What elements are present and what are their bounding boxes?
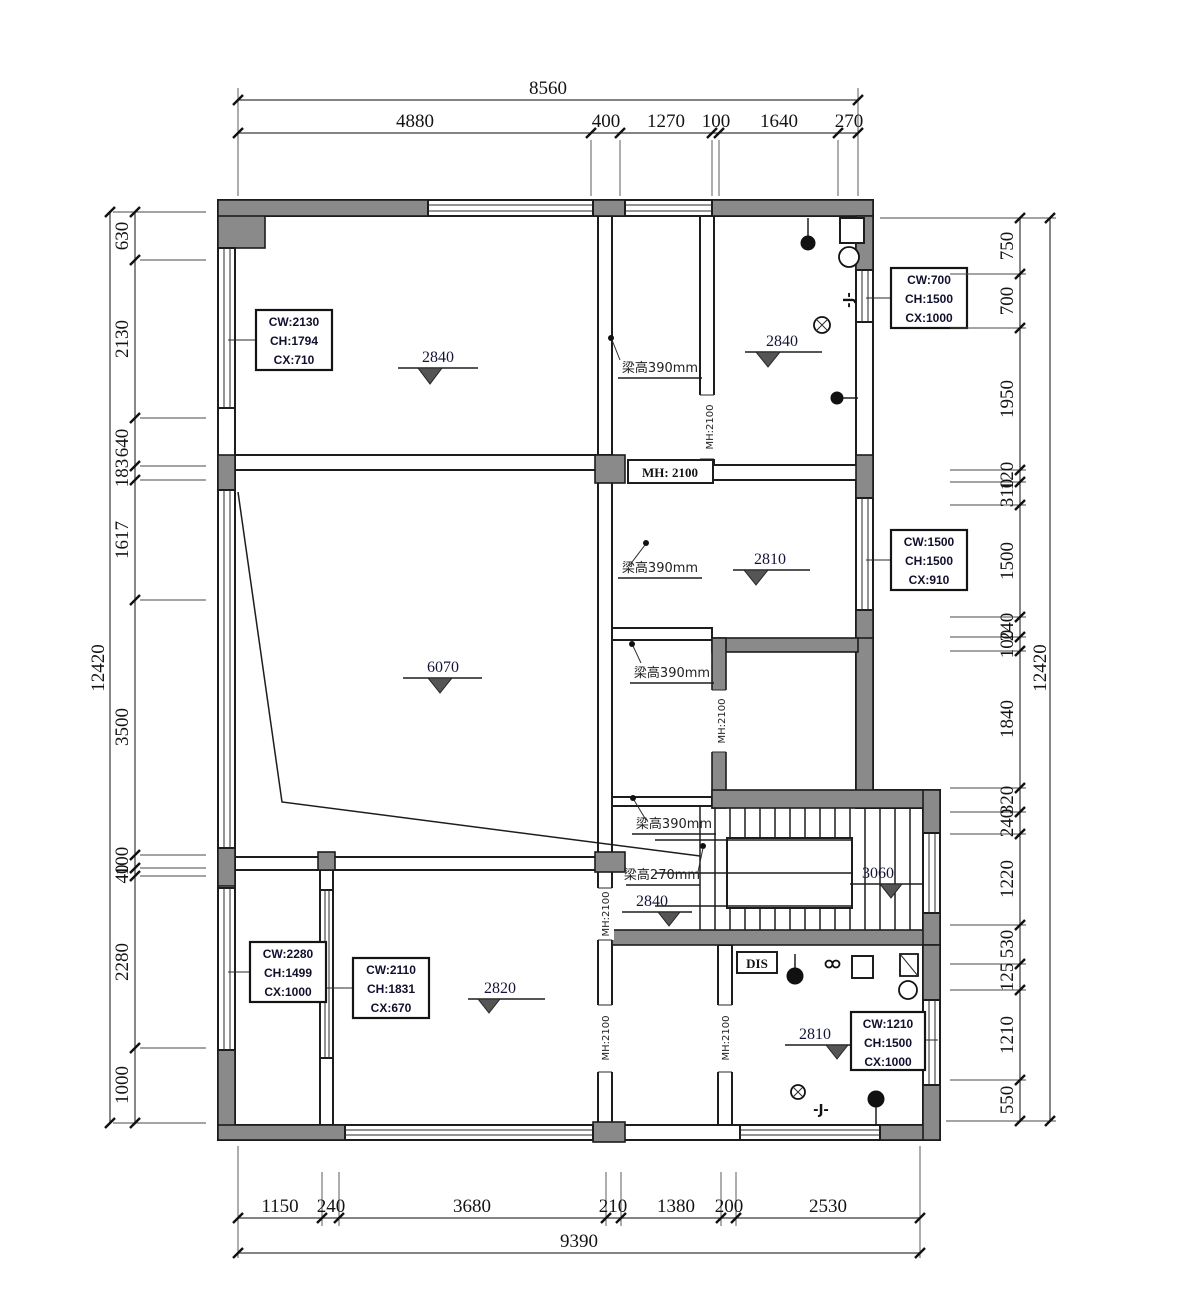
dim-label: 2530 [809,1196,847,1217]
light-fixture [868,1091,884,1107]
double-socket [833,961,840,968]
beam-label-2: 梁高390mm [618,540,702,578]
dim-label: 125 [997,963,1018,992]
light-fixture [787,968,803,984]
svg-text:2840: 2840 [636,893,668,910]
dim-label: 183 [112,459,133,488]
dim-label: 1210 [997,1016,1018,1054]
light-fixture [801,236,815,250]
dim-label: 1270 [647,111,685,132]
dim-label: 3680 [453,1196,491,1217]
dim-label: 1640 [760,111,798,132]
double-socket [826,961,833,968]
svg-text:CH:1794: CH:1794 [270,334,318,348]
svg-text:6070: 6070 [427,659,459,676]
dim-label: 1500 [997,542,1018,580]
svg-text:CX:1000: CX:1000 [264,985,312,999]
dim-label: 100 [997,630,1018,659]
dimension-top: 8560 4880 400 1270 100 1640 270 [233,78,863,196]
dim-label: 750 [997,232,1018,261]
dimension-bottom: 1150 240 3680 210 1380 200 2530 9390 [233,1146,925,1258]
window-spec-w5: CW:2110 CH:1831 CX:670 [327,958,429,1018]
elevation-bath-bottom: 2810 [785,1026,858,1059]
svg-text:2840: 2840 [766,333,798,350]
svg-text:梁高390mm: 梁高390mm [636,816,712,832]
bathroom-fixtures-top: -J- [801,218,864,404]
dim-label: 200 [715,1196,744,1217]
dimension-left: 630 2130 640 183 1617 3500 100 40 2280 1… [88,207,206,1128]
elevation-room-mid: 2810 [733,551,810,585]
dim-label: 210 [599,1196,628,1217]
beam-label-1: 梁高390mm [608,335,702,378]
window-spec-w4: CW:2280 CH:1499 CX:1000 [228,942,326,1002]
dim-label: 40 [112,865,133,884]
svg-text:梁高390mm: 梁高390mm [634,665,710,681]
fixture-box [852,956,873,978]
svg-text:CW:1210: CW:1210 [863,1017,914,1031]
door-height-label: MH:2100 [717,699,728,744]
window-spec-w3: CW:1500 CH:1500 CX:910 [866,530,967,590]
door-height-label: MH:2100 [601,1016,612,1061]
dim-label: 2130 [112,320,133,358]
dim-label: 1150 [261,1196,298,1217]
svg-text:CW:2110: CW:2110 [366,963,416,977]
dim-label: 400 [592,111,621,132]
svg-text:CW:1500: CW:1500 [904,535,955,549]
svg-text:CH:1831: CH:1831 [367,982,415,996]
dim-label: 1380 [657,1196,695,1217]
svg-text:2820: 2820 [484,980,516,997]
svg-text:梁高390mm: 梁高390mm [622,560,698,576]
svg-text:CW:700: CW:700 [907,273,951,287]
svg-text:CX:670: CX:670 [371,1001,412,1015]
elevation-lobby: 2840 [622,893,692,926]
beam-label-5: 梁高270mm [624,843,706,885]
elevation-bedroom-top: 2840 [398,349,478,384]
dim-label: 9390 [560,1231,598,1252]
svg-text:CX:710: CX:710 [274,353,315,367]
svg-text:CX:910: CX:910 [909,573,950,587]
dis-label: DIS [746,956,768,971]
elevation-stair: 3060 [850,865,922,898]
door-openings: MH:2100 MH:2100 MH:2100 MH:2100 MH:2100 … [596,395,734,1072]
dim-label: 700 [997,287,1018,316]
door-height-label: MH:2100 [721,1016,732,1061]
svg-text:2810: 2810 [754,551,786,568]
elevation-bedroom-bottom: 2820 [468,980,545,1013]
svg-text:CX:1000: CX:1000 [905,311,953,325]
dim-label: 1000 [112,1066,133,1104]
dim-label: 1840 [997,700,1018,738]
window-spec-w1: CW:2130 CH:1794 CX:710 [228,310,332,370]
water-supply-symbol: -J- [842,292,857,308]
door-height-label: MH:2100 [705,405,716,450]
svg-text:CH:1500: CH:1500 [905,292,953,306]
dim-label: 270 [835,111,864,132]
floor-plan-canvas: MH:2100 MH:2100 MH:2100 MH:2100 MH:2100 … [0,0,1200,1311]
svg-text:梁高270mm: 梁高270mm [624,867,700,883]
dim-label: 310 [997,479,1018,508]
svg-text:CW:2130: CW:2130 [269,315,320,329]
svg-text:2840: 2840 [422,349,454,366]
dim-label: 1617 [112,521,133,559]
door-head-label: MH: 2100 [642,465,698,480]
beam-label-3: 梁高390mm [629,641,714,683]
dim-label: 3500 [112,708,133,746]
dim-label: 12420 [88,644,109,692]
door-height-label: MH:2100 [601,892,612,937]
svg-text:梁高390mm: 梁高390mm [622,360,698,376]
dim-label: 12420 [1030,644,1051,692]
window-spec-w2: CW:700 CH:1500 CX:1000 [866,268,967,328]
dim-label: 550 [997,1086,1018,1115]
floor-plan-drawing: MH:2100 MH:2100 MH:2100 MH:2100 MH:2100 … [0,0,1200,1311]
fixture-box [840,218,864,243]
dim-label: 8560 [529,78,567,99]
svg-text:CH:1500: CH:1500 [864,1036,912,1050]
dim-label: 2280 [112,943,133,981]
water-supply-symbol: -J- [813,1103,829,1118]
drain-circle [899,981,917,999]
dim-label: 1950 [997,380,1018,418]
svg-text:CW:2280: CW:2280 [263,947,314,961]
dim-label: 1220 [997,860,1018,898]
dim-label: 640 [112,429,133,458]
elevation-living: 6070 [403,659,482,693]
svg-text:2810: 2810 [799,1026,831,1043]
drain-circle [839,247,859,267]
dim-label: 4880 [396,111,434,132]
window-spec-w6: CW:1210 CH:1500 CX:1000 [851,1012,938,1070]
dim-label: 100 [702,111,731,132]
svg-text:CX:1000: CX:1000 [864,1055,912,1069]
svg-text:3060: 3060 [862,865,894,882]
svg-text:CH:1500: CH:1500 [905,554,953,568]
dim-label: 530 [997,930,1018,959]
light-fixture [831,392,843,404]
elevation-bath-top: 2840 [745,333,822,367]
dim-label: 240 [997,809,1018,838]
elevation-markers: 2840 2840 2810 6070 2840 3060 2820 2810 [398,333,922,1059]
dim-label: 630 [112,222,133,251]
svg-text:CH:1499: CH:1499 [264,966,312,980]
dim-label: 240 [317,1196,346,1217]
